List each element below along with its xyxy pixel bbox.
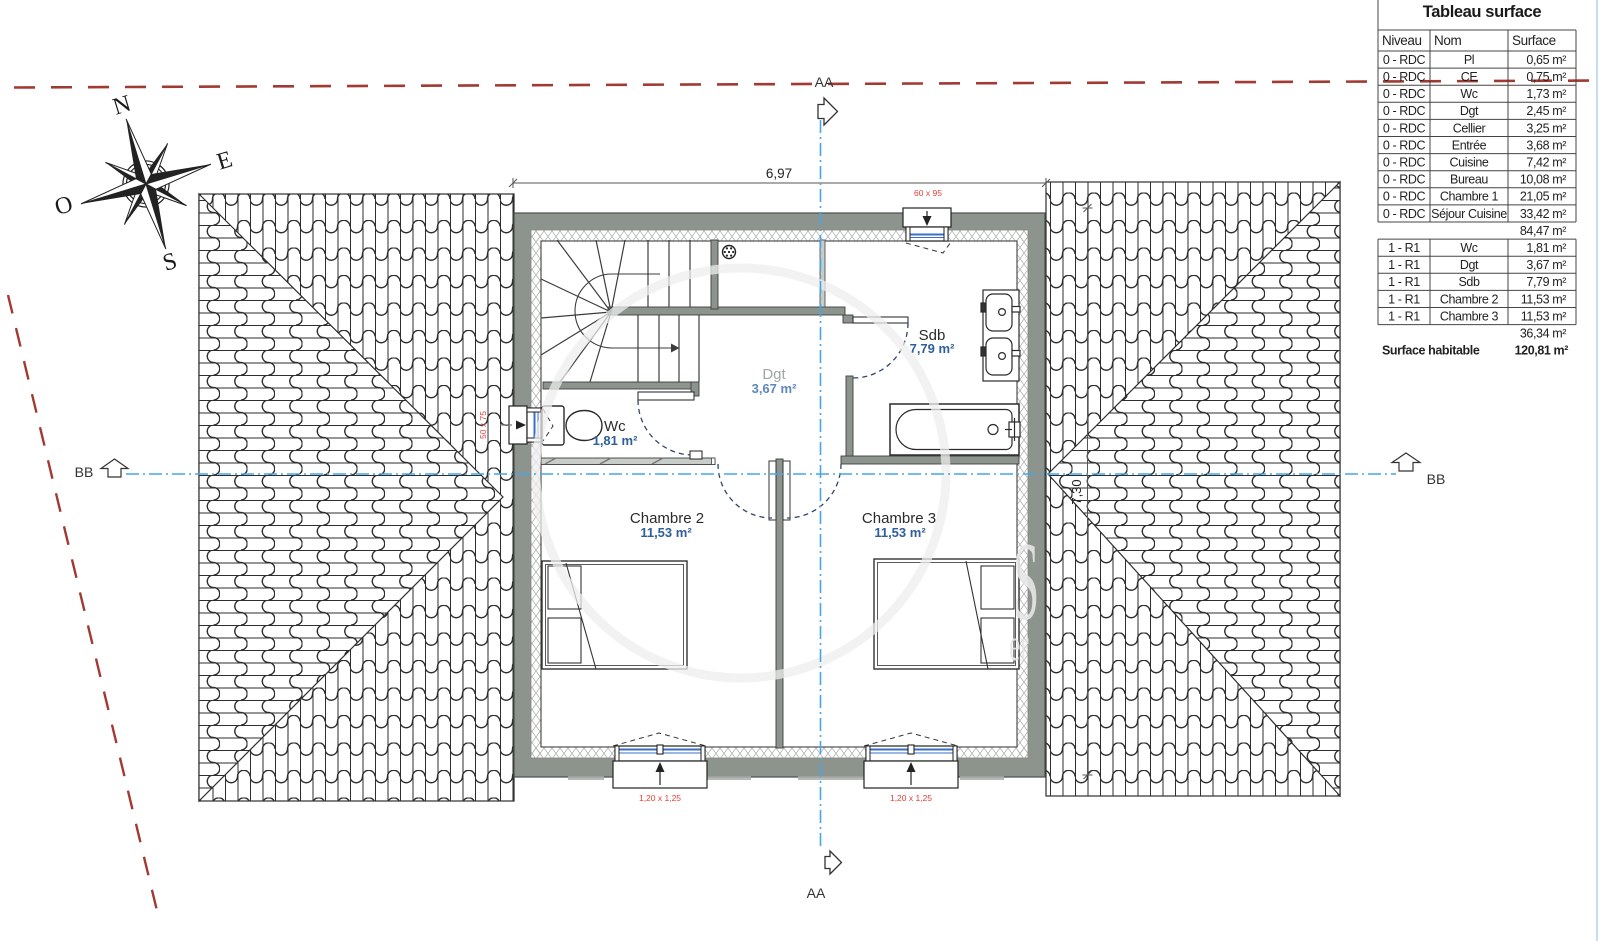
svg-text:er: er (1009, 620, 1029, 671)
svg-text:60 x 95: 60 x 95 (914, 188, 942, 198)
svg-text:1 - R1: 1 - R1 (1388, 292, 1420, 306)
svg-text:7,79 m²: 7,79 m² (910, 341, 955, 356)
svg-text:0 - RDC: 0 - RDC (1383, 121, 1426, 135)
svg-text:6,97: 6,97 (766, 166, 792, 181)
svg-text:Sdb: Sdb (1458, 275, 1479, 289)
svg-text:1,81 m²: 1,81 m² (593, 433, 638, 448)
svg-text:1,73 m²: 1,73 m² (1526, 87, 1566, 101)
svg-text:Surface habitable: Surface habitable (1382, 344, 1480, 358)
svg-text:Chambre 2: Chambre 2 (1440, 292, 1499, 306)
svg-text:0 - RDC: 0 - RDC (1383, 53, 1426, 67)
svg-text:120,81 m²: 120,81 m² (1515, 344, 1569, 358)
svg-text:AA: AA (807, 885, 826, 901)
svg-text:0 - RDC: 0 - RDC (1383, 156, 1426, 170)
svg-text:BB: BB (75, 464, 94, 480)
svg-text:7,42 m²: 7,42 m² (1526, 156, 1566, 170)
svg-text:11,53 m²: 11,53 m² (1521, 309, 1566, 323)
svg-text:Entrée: Entrée (1452, 138, 1487, 152)
svg-text:Dgt: Dgt (1460, 104, 1479, 118)
svg-text:Wc: Wc (1460, 241, 1477, 255)
svg-text:Cellier: Cellier (1453, 121, 1486, 135)
svg-text:0 - RDC: 0 - RDC (1383, 87, 1426, 101)
svg-text:Bureau: Bureau (1450, 173, 1488, 187)
svg-text:3,67 m²: 3,67 m² (752, 381, 797, 396)
svg-text:1,81 m²: 1,81 m² (1526, 241, 1566, 255)
svg-text:0 - RDC: 0 - RDC (1383, 138, 1426, 152)
svg-text:3,67 m²: 3,67 m² (1526, 258, 1566, 272)
svg-text:0 - RDC: 0 - RDC (1383, 207, 1426, 221)
svg-text:Tableau surface: Tableau surface (1423, 3, 1542, 21)
svg-text:3,25 m²: 3,25 m² (1526, 121, 1566, 135)
svg-text:0 - RDC: 0 - RDC (1383, 104, 1426, 118)
svg-text:Wc: Wc (1460, 87, 1477, 101)
svg-text:BB: BB (1427, 471, 1446, 487)
svg-text:Chambre 3: Chambre 3 (1440, 309, 1499, 323)
svg-text:50 x 75: 50 x 75 (478, 411, 488, 439)
svg-text:Dgt: Dgt (1460, 258, 1479, 272)
svg-text:Surface: Surface (1512, 33, 1556, 48)
svg-text:Cuisine: Cuisine (1450, 156, 1489, 170)
svg-text:11,53 m²: 11,53 m² (640, 525, 692, 540)
svg-text:1 - R1: 1 - R1 (1388, 258, 1420, 272)
svg-text:0 - RDC: 0 - RDC (1383, 190, 1426, 204)
svg-text:Séjour Cuisine: Séjour Cuisine (1431, 207, 1507, 221)
svg-text:10,08 m²: 10,08 m² (1520, 173, 1566, 187)
svg-text:11,53 m²: 11,53 m² (1521, 292, 1566, 306)
svg-text:21,05 m²: 21,05 m² (1520, 190, 1566, 204)
svg-text:3,68 m²: 3,68 m² (1526, 138, 1566, 152)
svg-text:Chambre 1: Chambre 1 (1440, 190, 1499, 204)
svg-text:2,45 m²: 2,45 m² (1526, 104, 1566, 118)
svg-text:11,53 m²: 11,53 m² (874, 525, 926, 540)
svg-text:84,47 m²: 84,47 m² (1520, 224, 1566, 238)
svg-text:1,20 x 1,25: 1,20 x 1,25 (890, 793, 932, 803)
svg-text:0,75 m²: 0,75 m² (1526, 70, 1566, 84)
svg-text:Niveau: Niveau (1382, 33, 1422, 48)
svg-text:AA: AA (815, 74, 834, 90)
svg-text:Pl: Pl (1464, 53, 1474, 67)
svg-text:33,42 m²: 33,42 m² (1520, 207, 1566, 221)
svg-text:1,20 x 1,25: 1,20 x 1,25 (639, 793, 681, 803)
svg-text:0,65 m²: 0,65 m² (1526, 53, 1566, 67)
svg-text:7,79 m²: 7,79 m² (1526, 275, 1566, 289)
svg-text:1 - R1: 1 - R1 (1388, 241, 1420, 255)
svg-text:36,34 m²: 36,34 m² (1520, 327, 1566, 341)
svg-text:CE: CE (1461, 70, 1478, 84)
svg-text:0 - RDC: 0 - RDC (1383, 70, 1426, 84)
svg-text:0 - RDC: 0 - RDC (1383, 173, 1426, 187)
svg-text:1 - R1: 1 - R1 (1388, 309, 1420, 323)
svg-text:Nom: Nom (1434, 33, 1461, 48)
svg-text:7,30: 7,30 (1069, 479, 1084, 504)
svg-text:1 - R1: 1 - R1 (1388, 275, 1420, 289)
